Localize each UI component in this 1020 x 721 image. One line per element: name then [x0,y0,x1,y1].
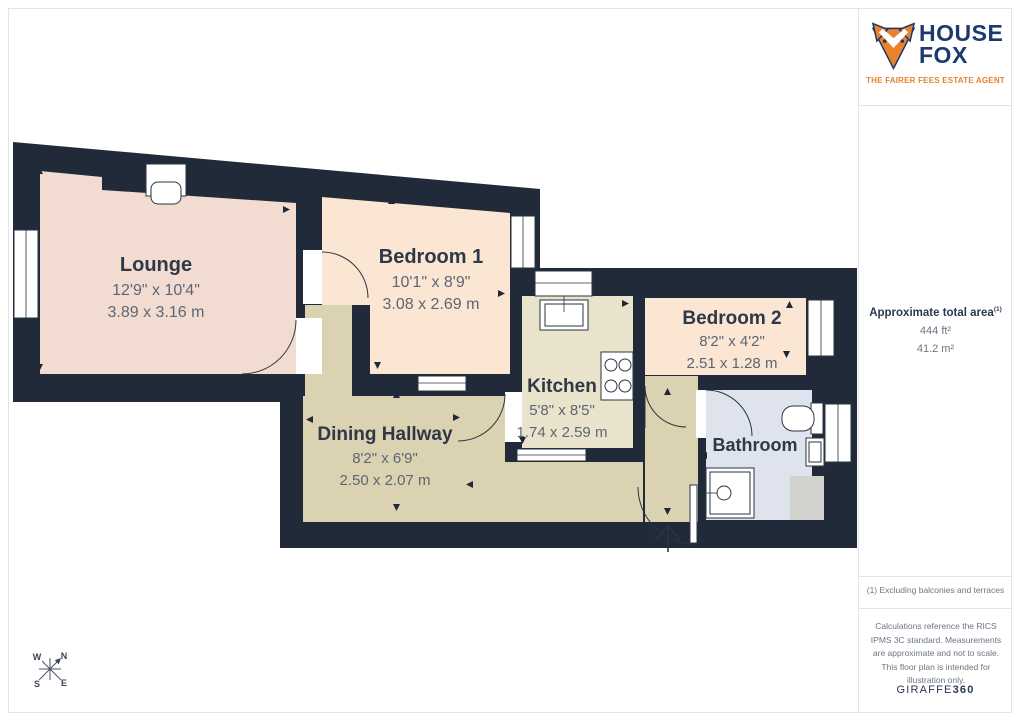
shower-icon [706,468,754,518]
compass-north: N [61,651,68,661]
bedroom1-label: Bedroom 1 [379,246,483,268]
window-lounge-left [14,230,38,318]
logo-word-top: HOUSE [919,22,1003,44]
bedroom2-dim-imperial: 8'2" x 4'2" [699,333,765,350]
floor-plan: Lounge 12'9" x 10'4" 3.89 x 3.16 m Bedro… [0,0,1020,721]
logo-word-bottom: FOX [919,44,1003,66]
disclaimer: Calculations reference the RICS IPMS 3C … [868,620,1004,688]
terrace [790,476,824,520]
dining-hallway-label: Dining Hallway [317,424,453,445]
bedroom1-dim-metric: 3.08 x 2.69 m [383,296,480,313]
compass-icon: W N S E [33,651,68,689]
compass-west: W [33,652,42,662]
bedroom2-dim-metric: 2.51 x 1.28 m [687,355,778,372]
compass-south: S [34,679,40,689]
logo-wordmark: HOUSE FOX [919,22,1003,66]
bathroom-label: Bathroom [713,435,798,455]
total-area-block: Approximate total area(1) 444 ft² 41.2 m… [859,306,1012,355]
window-bathroom-right [825,404,851,462]
dining-hallway-dim-metric: 2.50 x 2.07 m [340,472,431,489]
footnote-divider-bottom [859,608,1012,609]
dining-hallway-dim-imperial: 8'2" x 6'9" [352,450,418,467]
toilet-icon [782,403,823,434]
logo-tagline: THE FAIRER FEES ESTATE AGENT [859,76,1012,85]
total-area-metric: 41.2 m² [859,343,1012,355]
fox-logo-icon [871,22,916,72]
provider-brand: GIRAFFE360 [859,684,1012,696]
compass-east: E [61,678,67,688]
total-area-title: Approximate total area(1) [859,306,1012,319]
window-bedroom1-right [511,216,535,268]
window-kitchen-top [535,271,592,296]
housefox-logo: HOUSE FOX [871,22,1003,72]
hall-under-kitchen [468,462,643,522]
window-kitchen-bottom [517,449,586,461]
lounge-label: Lounge [120,254,192,276]
floorplan-page: Lounge 12'9" x 10'4" 3.89 x 3.16 m Bedro… [0,0,1020,721]
provider-suffix: 360 [953,684,975,696]
logo-divider [859,105,1012,106]
bathroom-sink-icon [806,438,824,466]
kitchen-dim-imperial: 5'8" x 8'5" [529,402,595,419]
provider-prefix: GIRAFFE [896,684,952,696]
total-area-title-text: Approximate total area [869,307,994,319]
kitchen-label: Kitchen [527,376,597,397]
kitchen-dim-metric: 1.74 x 2.59 m [517,424,608,441]
total-area-imperial: 444 ft² [859,325,1012,337]
window-bedroom1-bottom [418,376,466,391]
bedroom1-dim-imperial: 10'1" x 8'9" [392,274,471,291]
fireplace-icon [146,164,186,204]
window-bedroom2-right [808,300,834,356]
total-area-title-note: (1) [994,306,1002,313]
footnote: (1) Excluding balconies and terraces [859,585,1012,595]
hob-icon [601,352,633,400]
lounge-dim-metric: 3.89 x 3.16 m [108,304,205,321]
lounge-dim-imperial: 12'9" x 10'4" [112,282,200,299]
kitchen-sink-icon [540,296,588,330]
bedroom2-label: Bedroom 2 [682,308,781,329]
footnote-divider-top [859,576,1012,577]
